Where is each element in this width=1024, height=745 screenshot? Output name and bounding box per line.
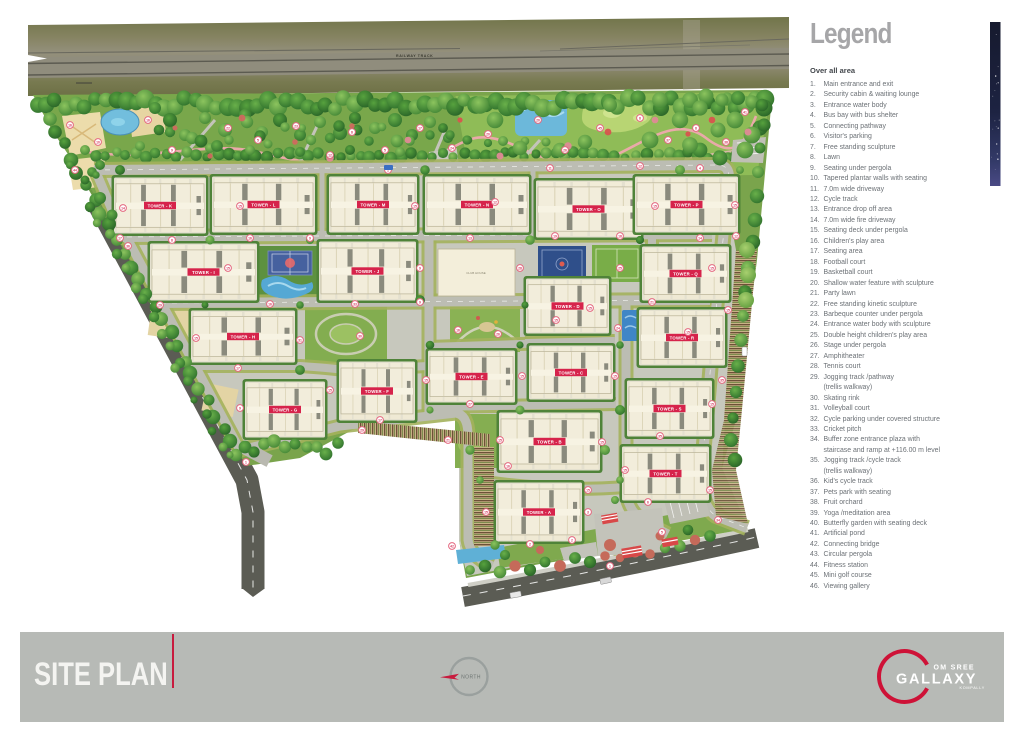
svg-text:29: 29	[158, 303, 162, 307]
svg-text:8: 8	[695, 126, 697, 130]
svg-text:17: 17	[378, 418, 382, 422]
svg-text:TOWER - G: TOWER - G	[273, 407, 298, 412]
svg-text:TOWER - N: TOWER - N	[465, 202, 490, 207]
svg-text:15: 15	[588, 306, 592, 310]
svg-text:TOWER - E: TOWER - E	[459, 374, 483, 379]
svg-text:33: 33	[353, 302, 357, 306]
svg-text:9: 9	[419, 266, 421, 270]
svg-text:8: 8	[171, 238, 173, 242]
svg-text:35: 35	[658, 434, 662, 438]
svg-text:17: 17	[236, 366, 240, 370]
svg-text:15: 15	[413, 204, 417, 208]
svg-text:15: 15	[600, 440, 604, 444]
svg-text:TOWER - P: TOWER - P	[674, 202, 698, 207]
svg-text:5: 5	[661, 530, 663, 534]
svg-text:15: 15	[226, 266, 230, 270]
svg-text:15: 15	[194, 336, 198, 340]
svg-text:TOWER - R: TOWER - R	[670, 335, 695, 340]
svg-text:44: 44	[73, 168, 77, 172]
svg-text:16: 16	[506, 464, 510, 468]
svg-text:TOWER - S: TOWER - S	[657, 406, 681, 411]
svg-text:15: 15	[520, 374, 524, 378]
svg-text:35: 35	[720, 378, 724, 382]
svg-text:14: 14	[121, 206, 125, 210]
svg-text:OM SREE: OM SREE	[934, 665, 975, 672]
svg-text:TOWER - F: TOWER - F	[365, 389, 389, 394]
svg-text:25: 25	[618, 266, 622, 270]
svg-text:5: 5	[384, 148, 386, 152]
svg-text:2: 2	[529, 542, 531, 546]
svg-text:4: 4	[699, 166, 701, 170]
svg-text:38: 38	[724, 140, 728, 144]
svg-text:NORTH: NORTH	[461, 675, 481, 681]
svg-text:TOWER - H: TOWER - H	[231, 334, 256, 339]
svg-text:26: 26	[563, 148, 567, 152]
svg-text:TOWER - L: TOWER - L	[251, 202, 275, 207]
svg-text:16: 16	[146, 118, 150, 122]
svg-text:KOMPALLY: KOMPALLY	[960, 686, 986, 690]
svg-text:24: 24	[616, 326, 620, 330]
svg-text:15: 15	[498, 438, 502, 442]
svg-text:22: 22	[226, 126, 230, 130]
svg-text:9: 9	[239, 406, 241, 410]
svg-text:1: 1	[245, 460, 247, 464]
svg-text:15: 15	[328, 388, 332, 392]
svg-text:11: 11	[548, 166, 552, 170]
svg-text:21: 21	[446, 438, 450, 442]
svg-text:8: 8	[351, 130, 353, 134]
svg-text:36: 36	[126, 244, 130, 248]
svg-text:15: 15	[623, 468, 627, 472]
svg-text:12: 12	[638, 164, 642, 168]
svg-text:12: 12	[493, 200, 497, 204]
svg-text:16: 16	[268, 302, 272, 306]
svg-text:TOWER - J: TOWER - J	[356, 269, 380, 274]
svg-text:21: 21	[650, 300, 654, 304]
svg-text:15: 15	[686, 330, 690, 334]
svg-text:TOWER - B: TOWER - B	[537, 439, 562, 444]
svg-text:28: 28	[518, 266, 522, 270]
svg-text:9: 9	[171, 148, 173, 152]
svg-text:TOWER - D: TOWER - D	[555, 304, 580, 309]
svg-text:TOWER - M: TOWER - M	[360, 202, 385, 207]
svg-text:16: 16	[68, 123, 72, 127]
svg-text:15: 15	[238, 204, 242, 208]
svg-text:2: 2	[571, 538, 573, 542]
svg-text:34: 34	[716, 518, 720, 522]
svg-text:12: 12	[734, 234, 738, 238]
svg-text:15: 15	[586, 488, 590, 492]
svg-text:15: 15	[710, 266, 714, 270]
svg-text:20: 20	[536, 118, 540, 122]
svg-text:TOWER - A: TOWER - A	[527, 510, 551, 515]
svg-text:31: 31	[298, 338, 302, 342]
svg-text:17: 17	[418, 126, 422, 130]
svg-text:15: 15	[424, 378, 428, 382]
svg-text:15: 15	[653, 204, 657, 208]
svg-text:15: 15	[484, 510, 488, 514]
svg-text:CLUB HOUSE: CLUB HOUSE	[466, 271, 486, 275]
svg-text:TOWER - K: TOWER - K	[148, 203, 173, 208]
svg-text:15: 15	[710, 402, 714, 406]
svg-text:3: 3	[587, 510, 589, 514]
svg-text:24: 24	[450, 146, 454, 150]
svg-text:26: 26	[496, 332, 500, 336]
svg-text:30: 30	[358, 334, 362, 338]
svg-text:9: 9	[309, 236, 311, 240]
svg-text:20: 20	[486, 132, 490, 136]
svg-text:6: 6	[647, 500, 649, 504]
svg-text:12: 12	[328, 153, 332, 157]
svg-text:14: 14	[698, 236, 702, 240]
svg-text:18: 18	[618, 234, 622, 238]
svg-text:15: 15	[554, 318, 558, 322]
svg-text:8: 8	[639, 116, 641, 120]
svg-text:41: 41	[743, 110, 747, 114]
svg-text:29: 29	[360, 428, 364, 432]
svg-text:TOWER - C: TOWER - C	[559, 370, 584, 375]
svg-text:15: 15	[708, 488, 712, 492]
svg-text:16: 16	[248, 236, 252, 240]
svg-text:15: 15	[733, 203, 737, 207]
svg-text:17: 17	[118, 236, 122, 240]
svg-text:42: 42	[450, 544, 454, 548]
svg-text:5: 5	[257, 138, 259, 142]
svg-text:TOWER - O: TOWER - O	[576, 207, 601, 212]
svg-text:23: 23	[294, 124, 298, 128]
svg-text:TOWER - T: TOWER - T	[653, 471, 677, 476]
svg-text:TOWER - I: TOWER - I	[192, 270, 215, 275]
svg-text:RAILWAY TRACK: RAILWAY TRACK	[396, 54, 433, 58]
svg-text:9: 9	[419, 300, 421, 304]
svg-text:10: 10	[96, 140, 100, 144]
svg-text:37: 37	[666, 138, 670, 142]
svg-text:15: 15	[726, 308, 730, 312]
svg-text:15: 15	[613, 374, 617, 378]
svg-text:45: 45	[598, 126, 602, 130]
svg-text:1: 1	[609, 564, 611, 568]
svg-text:16: 16	[456, 328, 460, 332]
svg-text:19: 19	[553, 234, 557, 238]
svg-text:27: 27	[468, 402, 472, 406]
svg-text:TOWER - Q: TOWER - Q	[673, 271, 698, 276]
svg-text:13: 13	[468, 236, 472, 240]
